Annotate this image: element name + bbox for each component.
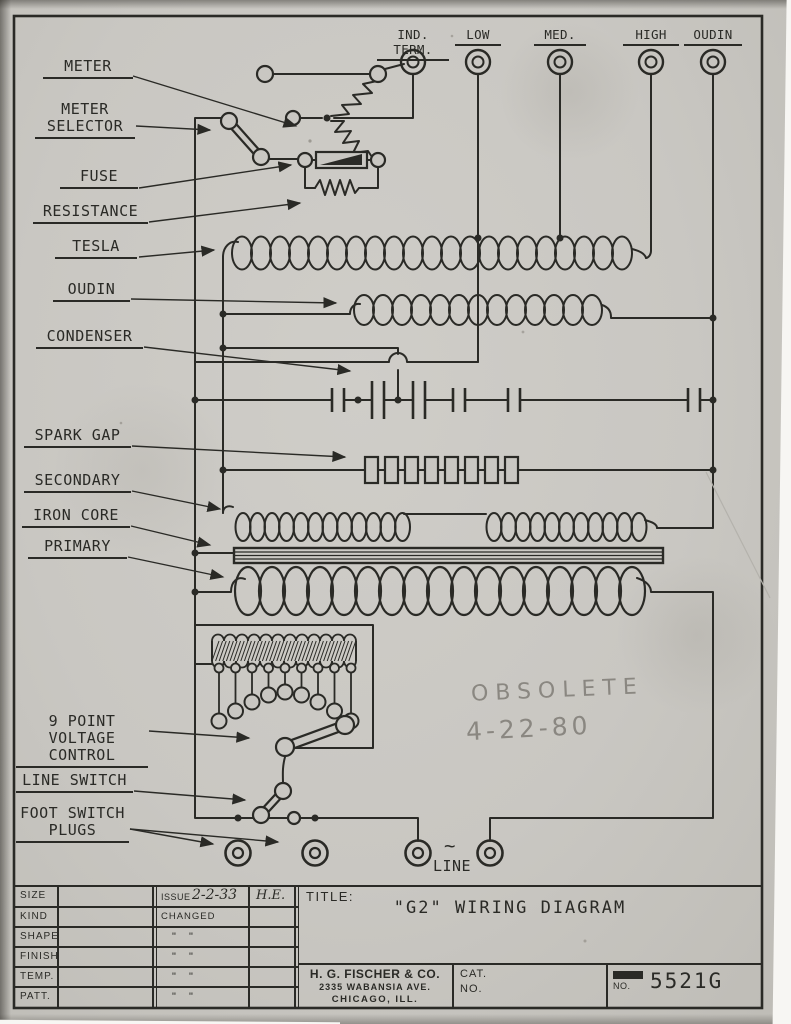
- wire-secondary-links: [223, 506, 657, 528]
- fuse-symbol: [316, 152, 367, 168]
- wire-oudin-tap: [223, 304, 360, 314]
- label-leader-lines: [128, 76, 350, 844]
- row-label-finish: FINISH: [20, 951, 59, 962]
- contact-circles: [257, 66, 386, 824]
- drawing-number: 5521G: [650, 969, 723, 993]
- row-label-kind: KIND: [20, 911, 48, 922]
- scan-artifacts: [120, 35, 770, 943]
- label-voltage-control: 9 POINT VOLTAGECONTROL: [16, 713, 148, 768]
- label-primary: PRIMARY: [28, 538, 127, 559]
- primary-coil: [235, 567, 645, 615]
- company-city: CHICAGO, ILL.: [300, 994, 450, 1005]
- no-label: NO.: [613, 981, 631, 991]
- issue-label: ISSUE: [161, 892, 191, 902]
- titleblock-line: [156, 885, 157, 1007]
- voltage-control-taps: [212, 664, 359, 729]
- row-label-patt: PATT.: [20, 991, 51, 1002]
- label-tesla: TESLA: [55, 238, 137, 259]
- label-meter-selector: METERSELECTOR: [35, 101, 135, 139]
- titleblock-line: [452, 963, 454, 1008]
- titleblock-line: [298, 963, 762, 965]
- ac-tilde-symbol: ~: [436, 838, 464, 857]
- iron-core-bar: [234, 548, 663, 563]
- issue-date: 2-2-33: [192, 887, 237, 903]
- terminal-label-ind-term: IND. TERM.: [377, 27, 449, 61]
- scanned-wiring-diagram: IND. TERM. LOW MED. HIGH OUDIN METER MET…: [0, 0, 791, 1024]
- company-name: H. G. FISCHER & CO.: [300, 967, 450, 981]
- label-secondary: SECONDARY: [24, 472, 131, 493]
- wire-oudin-right: [602, 305, 713, 318]
- label-line: LINE: [428, 858, 476, 877]
- issue-initials: H.E.: [256, 888, 285, 903]
- number-stamp-bar: [613, 971, 643, 979]
- drawing-title: "G2" WIRING DIAGRAM: [340, 898, 680, 918]
- terminal-label-med: MED.: [534, 27, 586, 46]
- tesla-coil: [232, 237, 632, 270]
- titleblock-line: [248, 885, 250, 1007]
- cat-label-line1: CAT.: [460, 968, 487, 980]
- label-iron-core: IRON CORE: [22, 507, 130, 528]
- terminal-label-high: HIGH: [623, 27, 679, 46]
- ditto-marks: " ": [172, 951, 193, 963]
- row-label-temp: TEMP.: [20, 971, 54, 982]
- label-line-switch: LINE SWITCH: [16, 772, 133, 793]
- voltage-control-winding: [212, 635, 356, 668]
- ditto-marks: " ": [172, 991, 193, 1003]
- label-spark-gap: SPARK GAP: [24, 427, 131, 448]
- ditto-marks: " ": [172, 931, 193, 943]
- cat-label-line2: NO.: [460, 983, 483, 995]
- titleblock-line: [14, 885, 762, 887]
- label-meter: METER: [43, 58, 133, 79]
- label-resistance: RESISTANCE: [33, 203, 148, 224]
- label-fuse: FUSE: [60, 168, 138, 189]
- circuit-wires: [195, 64, 713, 841]
- company-address: 2335 WABANSIA AVE.: [300, 982, 450, 992]
- label-condenser: CONDENSER: [36, 328, 143, 349]
- label-foot-switch: FOOT SWITCHPLUGS: [16, 805, 129, 843]
- wire-low-med: [478, 75, 560, 362]
- wire-high: [646, 75, 651, 258]
- terminal-label-oudin: OUDIN: [684, 27, 742, 46]
- label-oudin: OUDIN: [53, 281, 130, 302]
- titleblock-line: [57, 885, 59, 1007]
- wire-meter-branch: [273, 64, 413, 118]
- titleblock-line: [152, 885, 154, 1007]
- secondary-coil: [236, 513, 647, 541]
- titleblock-line: [606, 963, 608, 1008]
- row-label-shape: SHAPE: [20, 931, 59, 942]
- wire-oudin-vertical: [657, 75, 713, 528]
- titleblock-line: [294, 885, 296, 1007]
- ditto-marks: " ": [172, 971, 193, 983]
- resistance-element: [315, 180, 359, 195]
- meter-element: [331, 81, 377, 116]
- changed-label: CHANGED: [161, 911, 216, 922]
- titleblock-line: [298, 885, 299, 1007]
- terminal-label-low: LOW: [455, 27, 501, 46]
- tesla-coil-leads: [223, 242, 646, 258]
- row-label-size: SIZE: [20, 890, 46, 901]
